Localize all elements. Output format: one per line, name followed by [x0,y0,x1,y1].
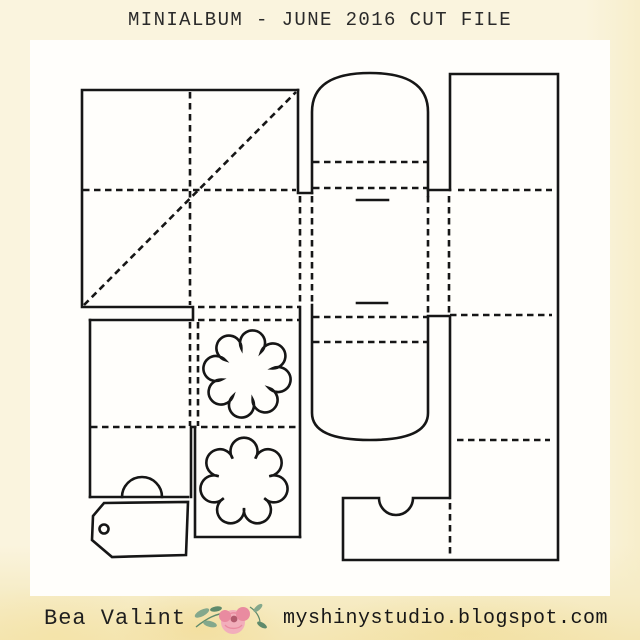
spine-bottom-arch [312,305,428,440]
left-flap-thumb-tab [122,477,162,497]
flower-leaf [256,620,268,630]
flower-leaf [210,605,223,612]
spine-top-arch [312,73,428,196]
tag-hole [100,525,109,534]
flower-leaf [252,603,263,614]
watercolor-rose-icon [186,597,278,639]
flower-die-1 [203,330,290,417]
footer-author: Bea Valint [44,596,186,640]
album-base-right-edge [298,90,312,193]
tag-outline [92,502,188,557]
flower-die-2 [200,438,287,524]
cut-file-diagram [0,0,640,640]
page: MINIALBUM - JUNE 2016 CUT FILE Bea Valin… [0,0,640,640]
footer-band: Bea Valint myshinystudio.blogspot.com [0,596,640,640]
rose-center [231,616,238,623]
rose-bud [219,610,231,622]
footer-site: myshinystudio.blogspot.com [283,596,608,640]
flower-leaf [193,606,210,619]
